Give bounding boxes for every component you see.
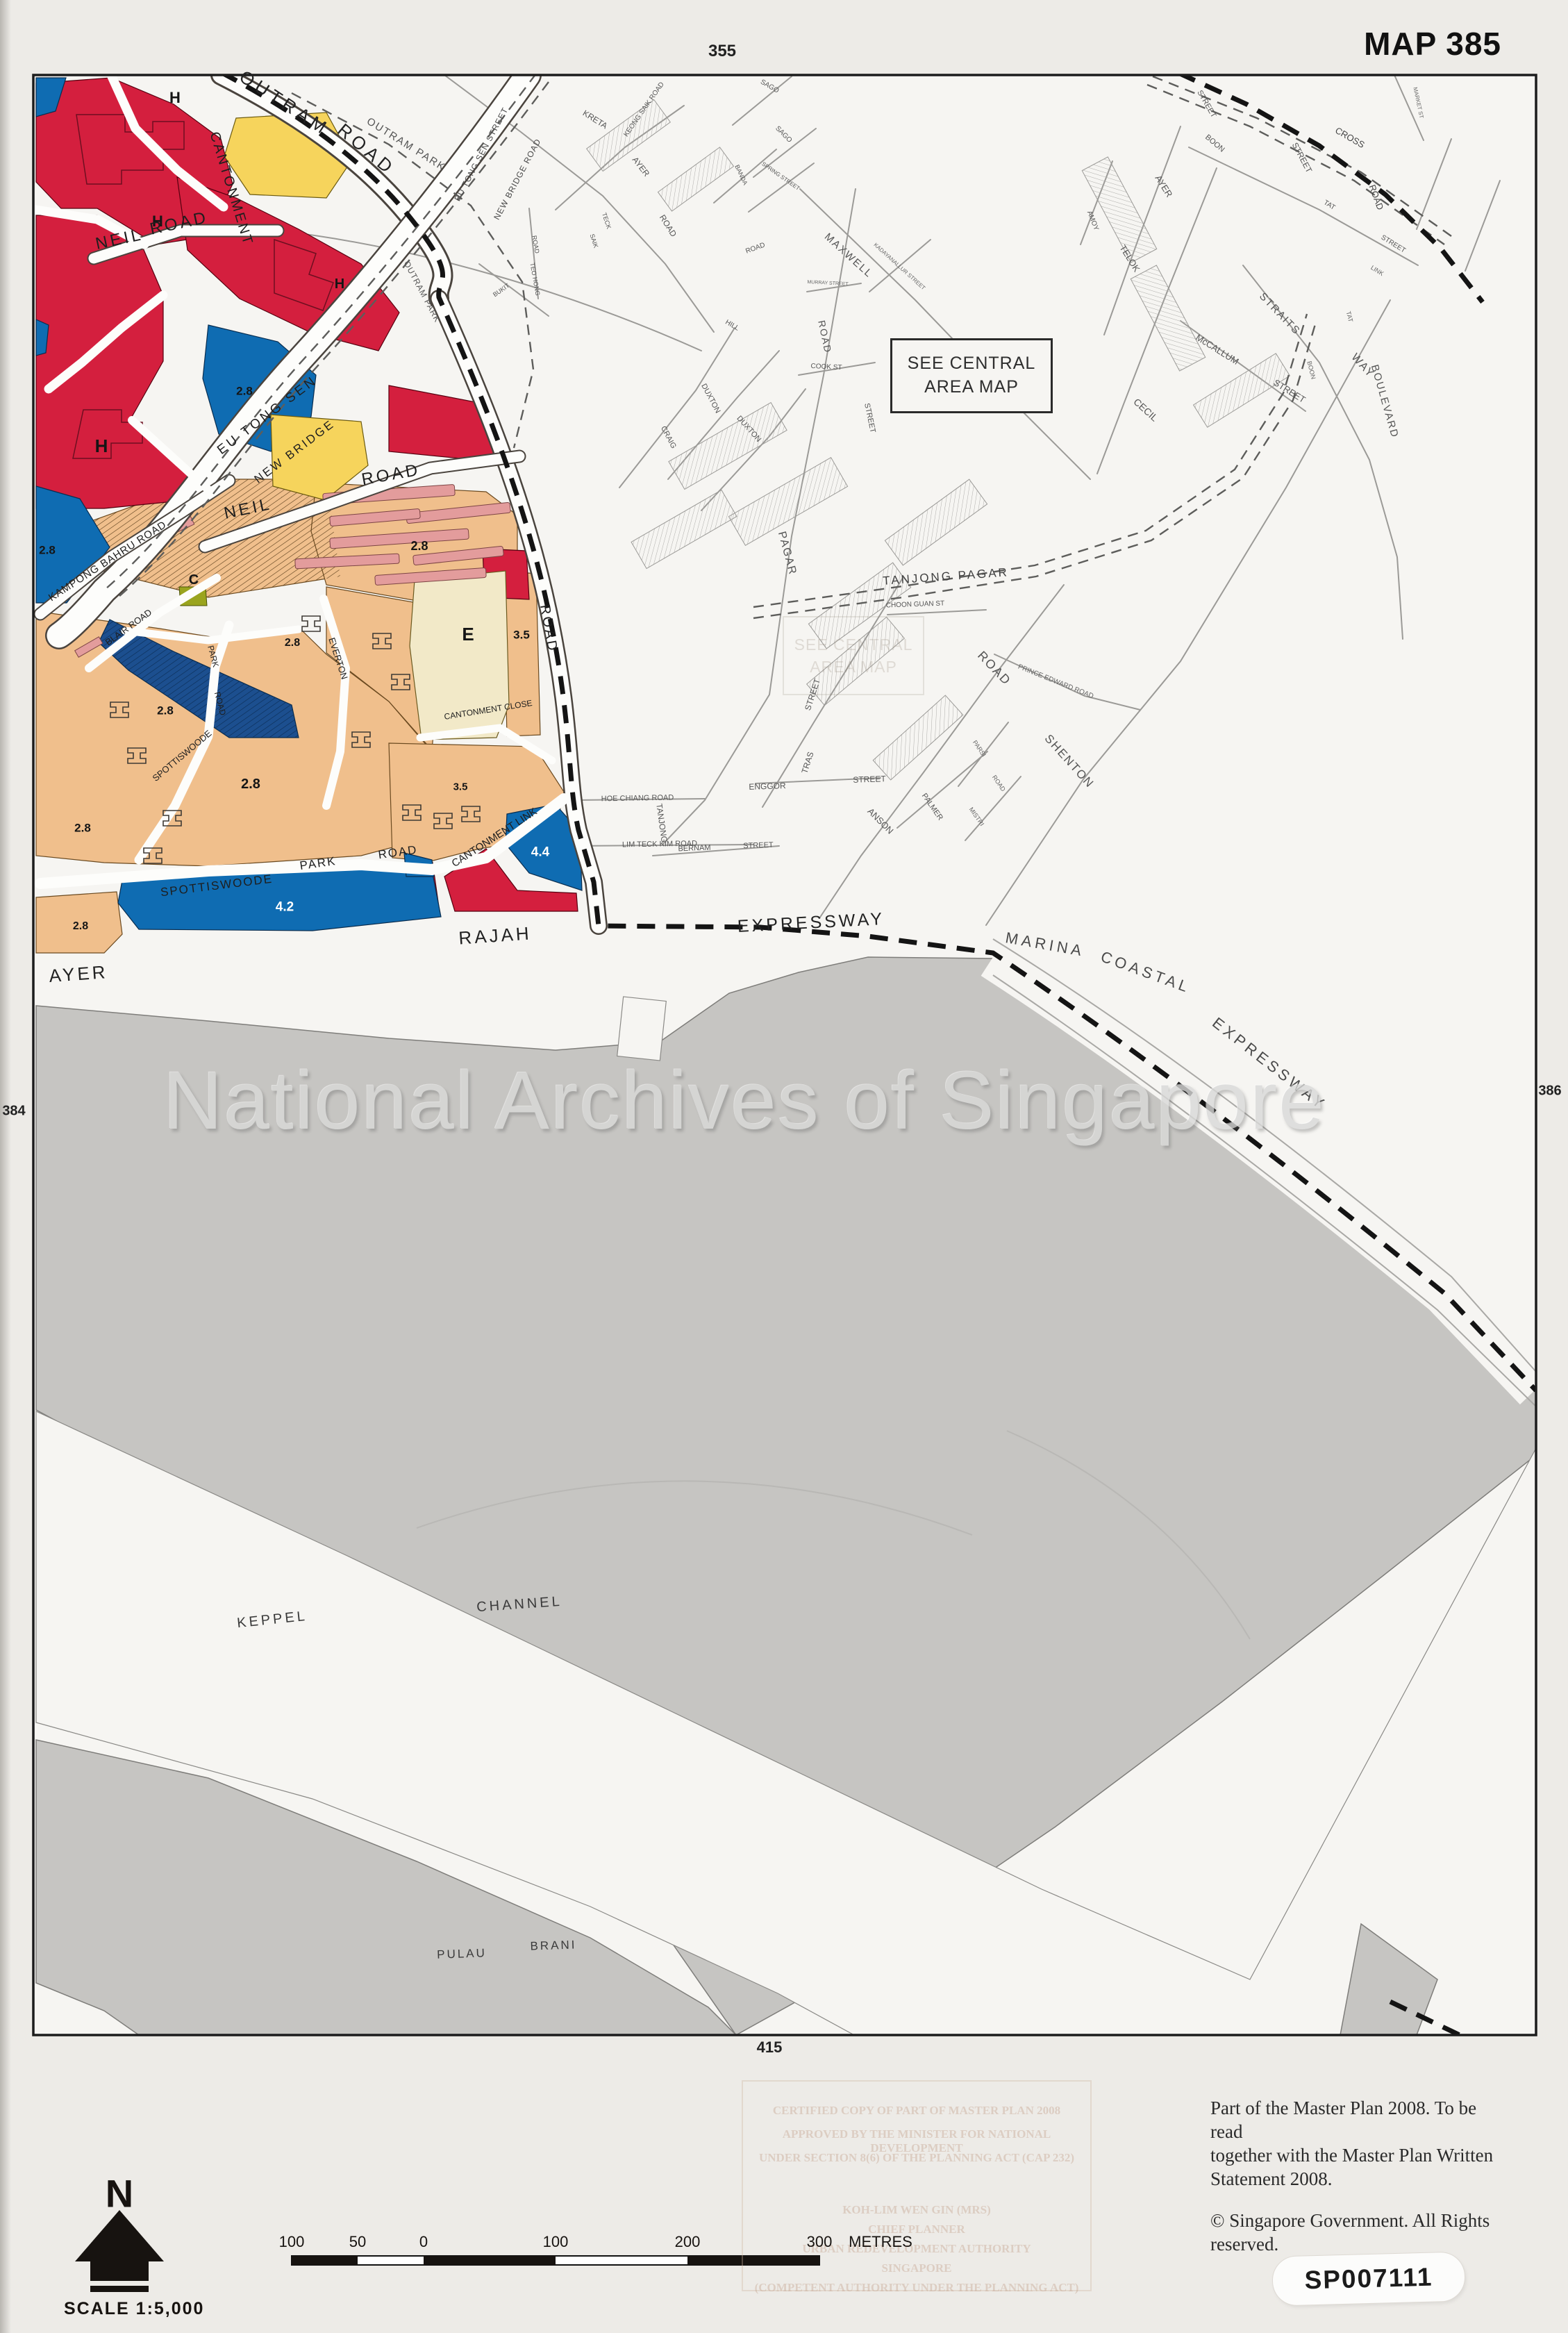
zone-label: H bbox=[335, 277, 344, 291]
stamp-line: CERTIFIED COPY OF PART OF MASTER PLAN 20… bbox=[743, 2104, 1090, 2118]
copyright-line: reserved. bbox=[1210, 2232, 1509, 2256]
scale-tick: 0 bbox=[419, 2233, 428, 2251]
archive-watermark: National Archives of Singapore bbox=[163, 1054, 1326, 1148]
zone-label: 2.8 bbox=[157, 705, 174, 717]
stamp-line: CHIEF PLANNER bbox=[743, 2223, 1090, 2236]
north-letter: N bbox=[106, 2171, 133, 2216]
see-box-line2: AREA MAP bbox=[924, 377, 1019, 397]
road-label: ENGGOR bbox=[749, 781, 786, 791]
edge-label-right: 386 bbox=[1538, 1084, 1561, 1099]
zone-label: 3.5 bbox=[513, 629, 530, 641]
scale-tick: 50 bbox=[349, 2233, 366, 2251]
scale-text: SCALE 1:5,000 bbox=[64, 2299, 204, 2319]
zone-label: 2.8 bbox=[285, 638, 300, 649]
zone-label: 3.5 bbox=[453, 782, 468, 792]
map-title: MAP 385 bbox=[1356, 25, 1501, 63]
dock-notch bbox=[617, 997, 667, 1061]
zone-label: 2.8 bbox=[236, 385, 253, 397]
stamp-line: URBAN REDEVELOPMENT AUTHORITY bbox=[743, 2242, 1090, 2256]
road-label: HOE CHIANG ROAD bbox=[601, 795, 674, 804]
attribution-block: Part of the Master Plan 2008. To be read… bbox=[1210, 2096, 1509, 2256]
see-box-ghost-print: SEE CENTRAL AREA MAP bbox=[783, 616, 924, 695]
scale-tick: 100 bbox=[543, 2233, 569, 2251]
zone-label: 2.8 bbox=[74, 822, 91, 834]
copyright-line: © Singapore Government. All Rights bbox=[1210, 2209, 1509, 2232]
zone-label: 2.8 bbox=[73, 921, 88, 932]
see-box-line1: SEE CENTRAL bbox=[908, 354, 1036, 373]
water-label: BRANI bbox=[530, 1938, 577, 1952]
attribution-line: Statement 2008. bbox=[1210, 2167, 1509, 2191]
road-label: RAJAH bbox=[458, 924, 533, 947]
zone-label: 4.4 bbox=[531, 846, 549, 859]
attribution-line: together with the Master Plan Written bbox=[1210, 2143, 1509, 2167]
road-label: BERNAM bbox=[678, 845, 710, 854]
attribution-line: Part of the Master Plan 2008. To be read bbox=[1210, 2096, 1509, 2143]
zone-label: H bbox=[95, 437, 108, 455]
road-label: STREET bbox=[743, 842, 774, 851]
edge-label-bottom: 415 bbox=[757, 2039, 783, 2057]
zone-label: C bbox=[189, 573, 199, 587]
zone-label: 2.8 bbox=[241, 777, 260, 791]
stamp-line: KOH-LIM WEN GIN (MRS) bbox=[743, 2203, 1090, 2217]
scanned-map-page: MAP 385 355 384 386 415 SEE CENTRAL AREA… bbox=[0, 0, 1568, 2333]
scale-bar bbox=[292, 2256, 819, 2265]
stamp-line: (COMPETENT AUTHORITY UNDER THE PLANNING … bbox=[743, 2281, 1090, 2295]
stamp-line: UNDER SECTION 8(6) OF THE PLANNING ACT (… bbox=[743, 2151, 1090, 2165]
archive-reference-number: SP007111 bbox=[1304, 2263, 1433, 2295]
zone-label: E bbox=[462, 625, 474, 643]
scale-tick: METRES bbox=[849, 2233, 912, 2251]
zone-label: 4.2 bbox=[276, 901, 294, 914]
north-arrow bbox=[75, 2210, 164, 2292]
scale-tick: 100 bbox=[279, 2233, 305, 2251]
scale-tick: 200 bbox=[675, 2233, 701, 2251]
water-label: PULAU bbox=[437, 1947, 487, 1960]
zone-label: H bbox=[169, 90, 181, 106]
scale-tick: 300 bbox=[807, 2233, 833, 2251]
see-central-area-map-box: SEE CENTRAL AREA MAP bbox=[890, 338, 1053, 413]
zone-label: 2.8 bbox=[410, 540, 428, 552]
map-graphics bbox=[0, 0, 1568, 2333]
edge-label-top: 355 bbox=[708, 42, 736, 61]
zone-label: 2.8 bbox=[39, 545, 56, 556]
stamp-line: SINGAPORE bbox=[743, 2261, 1090, 2275]
certification-stamp: CERTIFIED COPY OF PART OF MASTER PLAN 20… bbox=[742, 2080, 1092, 2291]
archive-reference-sticker: SP007111 bbox=[1272, 2252, 1465, 2305]
road-label: STREET bbox=[853, 774, 886, 784]
road-label: AYER bbox=[49, 963, 108, 985]
edge-label-left: 384 bbox=[2, 1104, 25, 1120]
